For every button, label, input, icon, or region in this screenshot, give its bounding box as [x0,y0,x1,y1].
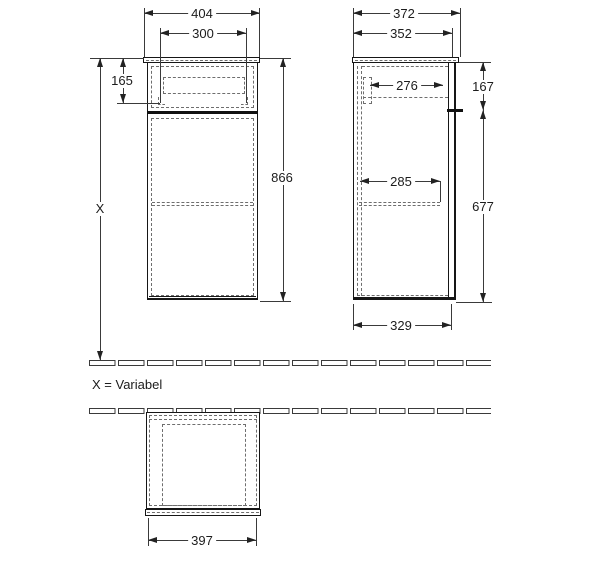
dim-plan-width: 397 [188,534,216,548]
extension-line [256,518,257,546]
plan-top-second-dash [149,419,257,420]
plan-drawer-dash [162,424,246,506]
dimension-arrow [247,537,256,543]
technical-drawing: 404 300 165 X 866 [0,0,605,565]
dimension-arrow [148,537,157,543]
plan-view: 397 [0,0,605,565]
plan-front-band-dash [147,512,259,513]
